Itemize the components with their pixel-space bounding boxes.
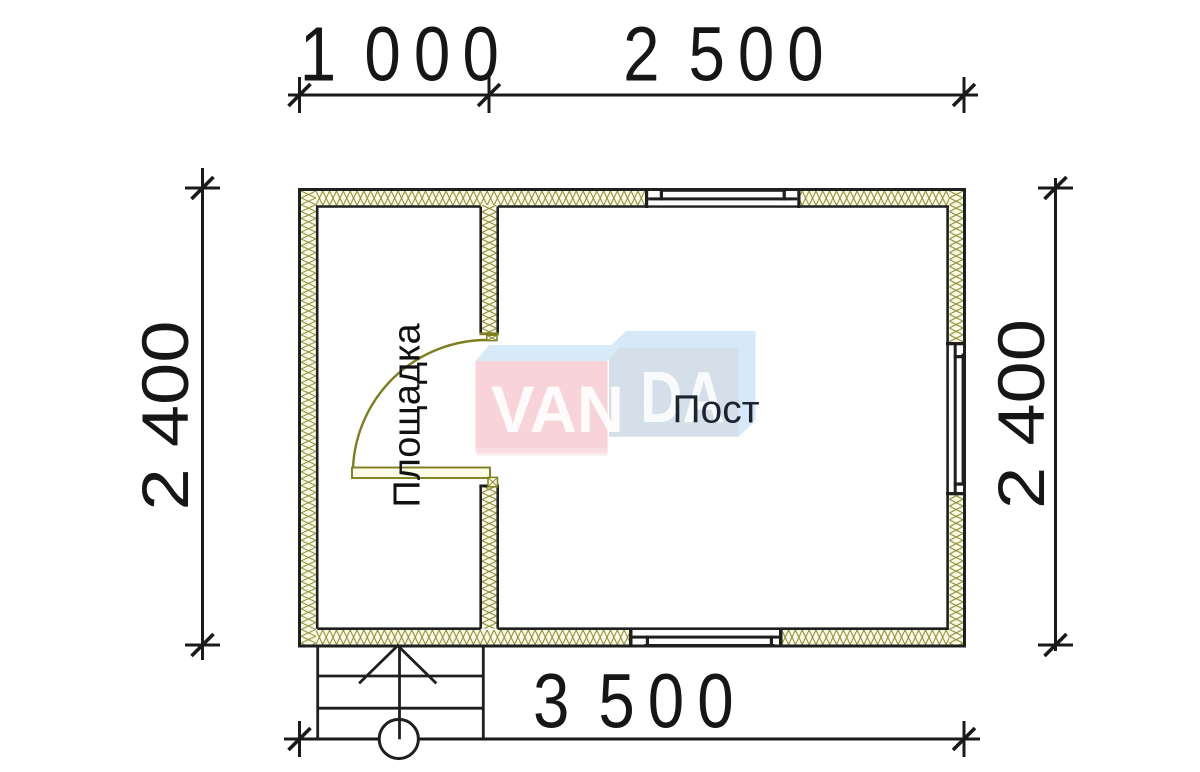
svg-text:0: 0 [463,12,499,98]
svg-text:0: 0 [787,12,823,98]
svg-text:1: 1 [300,12,336,98]
svg-text:5: 5 [689,12,725,98]
svg-text:0: 0 [414,12,450,98]
svg-text:3: 3 [533,659,569,745]
svg-text:Площадка: Площадка [387,323,429,508]
svg-text:0: 0 [738,12,774,98]
svg-text:0: 0 [697,659,733,745]
svg-text:5: 5 [598,659,634,745]
svg-text:2 400: 2 400 [986,319,1059,509]
svg-text:VAN: VAN [491,372,624,446]
svg-text:0: 0 [648,659,684,745]
svg-text:2: 2 [623,12,659,98]
svg-text:2 400: 2 400 [130,321,203,511]
svg-text:Пост: Пост [673,388,760,431]
svg-text:0: 0 [364,12,400,98]
